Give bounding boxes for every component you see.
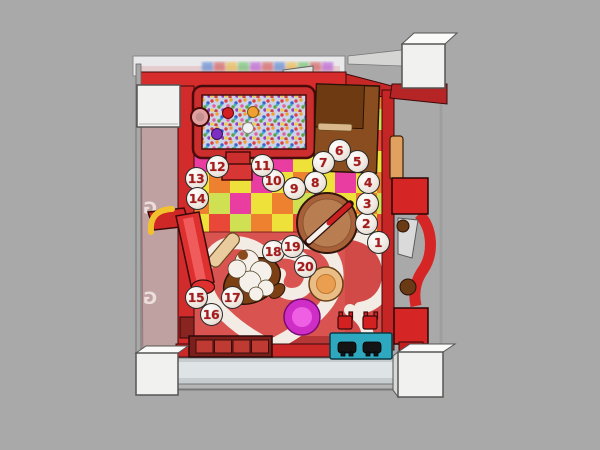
screenshot-canvas: G G	[0, 0, 600, 450]
chocolate-drop	[238, 250, 248, 260]
marker-12[interactable]: 12	[206, 155, 229, 178]
ball-purple	[212, 129, 223, 140]
marker-3[interactable]: 3	[356, 192, 379, 215]
bed-pillow	[318, 123, 352, 131]
room-top-view: G G	[0, 0, 600, 450]
round-table[interactable]	[297, 193, 357, 253]
ball-orange	[248, 107, 259, 118]
left-wall-letter: G	[143, 289, 157, 309]
marker-20[interactable]: 20	[294, 255, 317, 278]
ball-red	[223, 108, 234, 119]
marker-19[interactable]: 19	[281, 235, 304, 258]
marker-2[interactable]: 2	[355, 212, 378, 235]
marker-8[interactable]: 8	[304, 171, 327, 194]
marker-4[interactable]: 4	[357, 171, 380, 194]
corner-cube-top-left	[137, 85, 180, 127]
marker-14[interactable]: 14	[186, 187, 209, 210]
marker-16[interactable]: 16	[200, 303, 223, 326]
ball-white	[243, 123, 254, 134]
bench-table[interactable]	[330, 333, 392, 359]
marker-11[interactable]: 11	[251, 154, 274, 177]
marker-9[interactable]: 9	[283, 177, 306, 200]
marker-17[interactable]: 17	[221, 286, 244, 309]
donut-pouf-pink[interactable]	[284, 299, 320, 335]
